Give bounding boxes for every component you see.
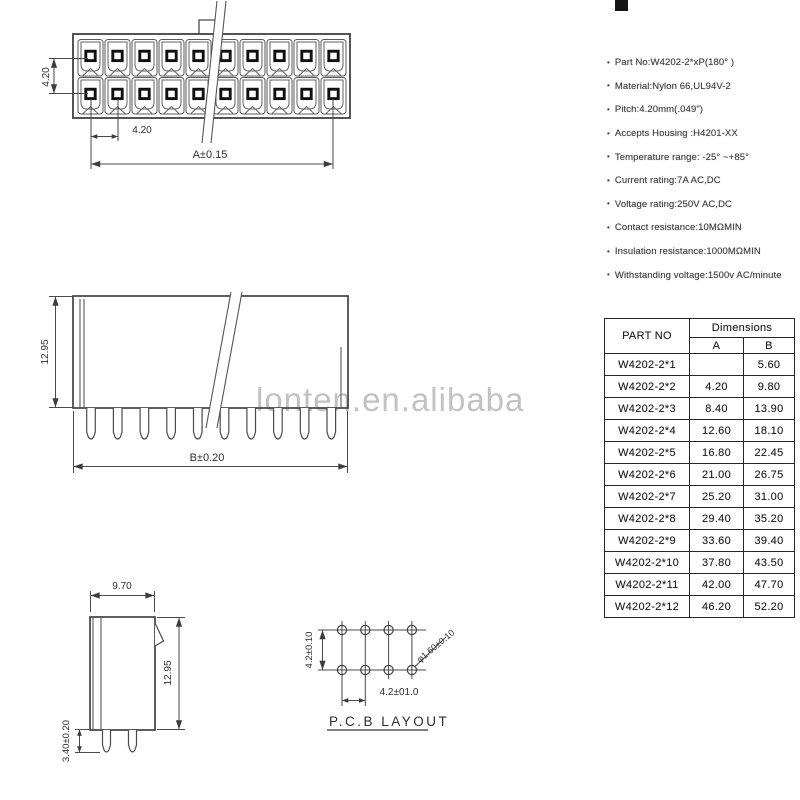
spec-text: Current rating:7A AC,DC	[615, 175, 721, 186]
table-row: W4202-2*1142.0047.70	[605, 574, 795, 596]
spec-text: Part No:W4202-2*xP(180° )	[615, 57, 734, 68]
spec-item: •Contact resistance:10MΩMIN	[607, 216, 800, 240]
spec-text: Insulation resistance:1000MΩMIN	[615, 246, 761, 257]
dimension-label-pcb-pitch-v: 4.2±0.10	[304, 632, 315, 669]
dimension-label-side-overall: B±0.20	[190, 452, 225, 464]
table-header-dimensions: Dimensions	[690, 319, 795, 338]
spec-item: •Temperature range: -25° ~+85°	[607, 145, 800, 169]
bullet-icon: •	[607, 248, 610, 256]
spec-list: •Part No:W4202-2*xP(180° ) •Material:Nyl…	[607, 51, 800, 287]
spec-text: Accepts Housing :H4201-XX	[615, 128, 738, 139]
spec-item: •Current rating:7A AC,DC	[607, 169, 800, 193]
table-row: W4202-2*516.8022.45	[605, 442, 795, 464]
spec-text: Voltage rating:250V AC,DC	[615, 199, 732, 210]
dimensions-table: PART NO Dimensions A B W4202-2*15.60 W42…	[604, 318, 795, 618]
table-row: W4202-2*933.6039.40	[605, 530, 795, 552]
spec-text: Pitch:4.20mm(.049")	[615, 104, 703, 115]
spec-item: •Voltage rating:250V AC,DC	[607, 193, 800, 217]
bullet-icon: •	[607, 224, 610, 232]
spec-item: •Material:Nylon 66,UL94V-2	[607, 75, 800, 99]
spec-text: Contact resistance:10MΩMIN	[615, 222, 742, 233]
dimension-label-pcb-pitch-h: 4.2±01.0	[380, 687, 419, 698]
dimension-label-end-height: 12.95	[163, 660, 174, 685]
dimension-label-end-width: 9.70	[112, 581, 132, 592]
table-row: W4202-2*24.209.80	[605, 376, 795, 398]
bullet-icon: •	[607, 200, 610, 208]
table-row: W4202-2*725.2031.00	[605, 486, 795, 508]
bullet-icon: •	[607, 153, 610, 161]
spec-item: •Accepts Housing :H4201-XX	[607, 122, 800, 146]
bullet-icon: •	[607, 82, 610, 90]
bullet-icon: •	[607, 271, 610, 279]
dimension-label-front-pitch-v: 4.20	[41, 67, 52, 87]
bullet-icon: •	[607, 106, 610, 114]
pcb-layout-title: P.C.B LAYOUT	[329, 714, 449, 729]
spec-item: •Withstanding voltage:1500v AC/minute	[607, 263, 800, 287]
table-header-b: B	[744, 338, 795, 354]
table-header-part: PART NO	[605, 319, 690, 354]
table-row: W4202-2*829.4035.20	[605, 508, 795, 530]
table-row: W4202-2*412.6018.10	[605, 420, 795, 442]
table-row: W4202-2*1037.8043.50	[605, 552, 795, 574]
spec-text: Material:Nylon 66,UL94V-2	[615, 81, 731, 92]
dimension-label-side-height: 12.95	[40, 339, 51, 364]
bullet-icon: •	[607, 59, 610, 67]
dimension-label-pcb-hole-diameter: φ1.60±0.10	[415, 627, 457, 664]
spec-item: •Pitch:4.20mm(.049")	[607, 98, 800, 122]
front-view: 4.20 4.20 A±0.15	[41, 1, 350, 169]
bullet-icon: •	[607, 177, 610, 185]
dimension-label-end-pin-length: 3.40±0.20	[61, 720, 72, 762]
spec-text: Withstanding voltage:1500v AC/minute	[615, 270, 782, 281]
table-row: W4202-2*1246.2052.20	[605, 596, 795, 618]
end-view: 9.70 12.95 3.40±0.20	[61, 581, 185, 762]
table-row: W4202-2*15.60	[605, 354, 795, 376]
spec-item: •Part No:W4202-2*xP(180° )	[607, 51, 800, 75]
table-row: W4202-2*38.4013.90	[605, 398, 795, 420]
dimension-label-front-overall: A±0.15	[193, 149, 228, 161]
dimension-label-front-pitch-h: 4.20	[132, 125, 152, 136]
side-view: 12.95 B±0.20	[40, 292, 348, 473]
table-row: W4202-2*621.0026.75	[605, 464, 795, 486]
bullet-icon: •	[607, 130, 610, 138]
spec-item: •Insulation resistance:1000MΩMIN	[607, 240, 800, 264]
spec-text: Temperature range: -25° ~+85°	[615, 152, 749, 163]
table-header-a: A	[690, 338, 744, 354]
pcb-layout: 4.2±0.10 4.2±01.0 φ1.60±0.10 P.C.B LAYOU…	[304, 621, 456, 730]
datasheet-page: lonten.en.alibaba	[0, 0, 800, 800]
